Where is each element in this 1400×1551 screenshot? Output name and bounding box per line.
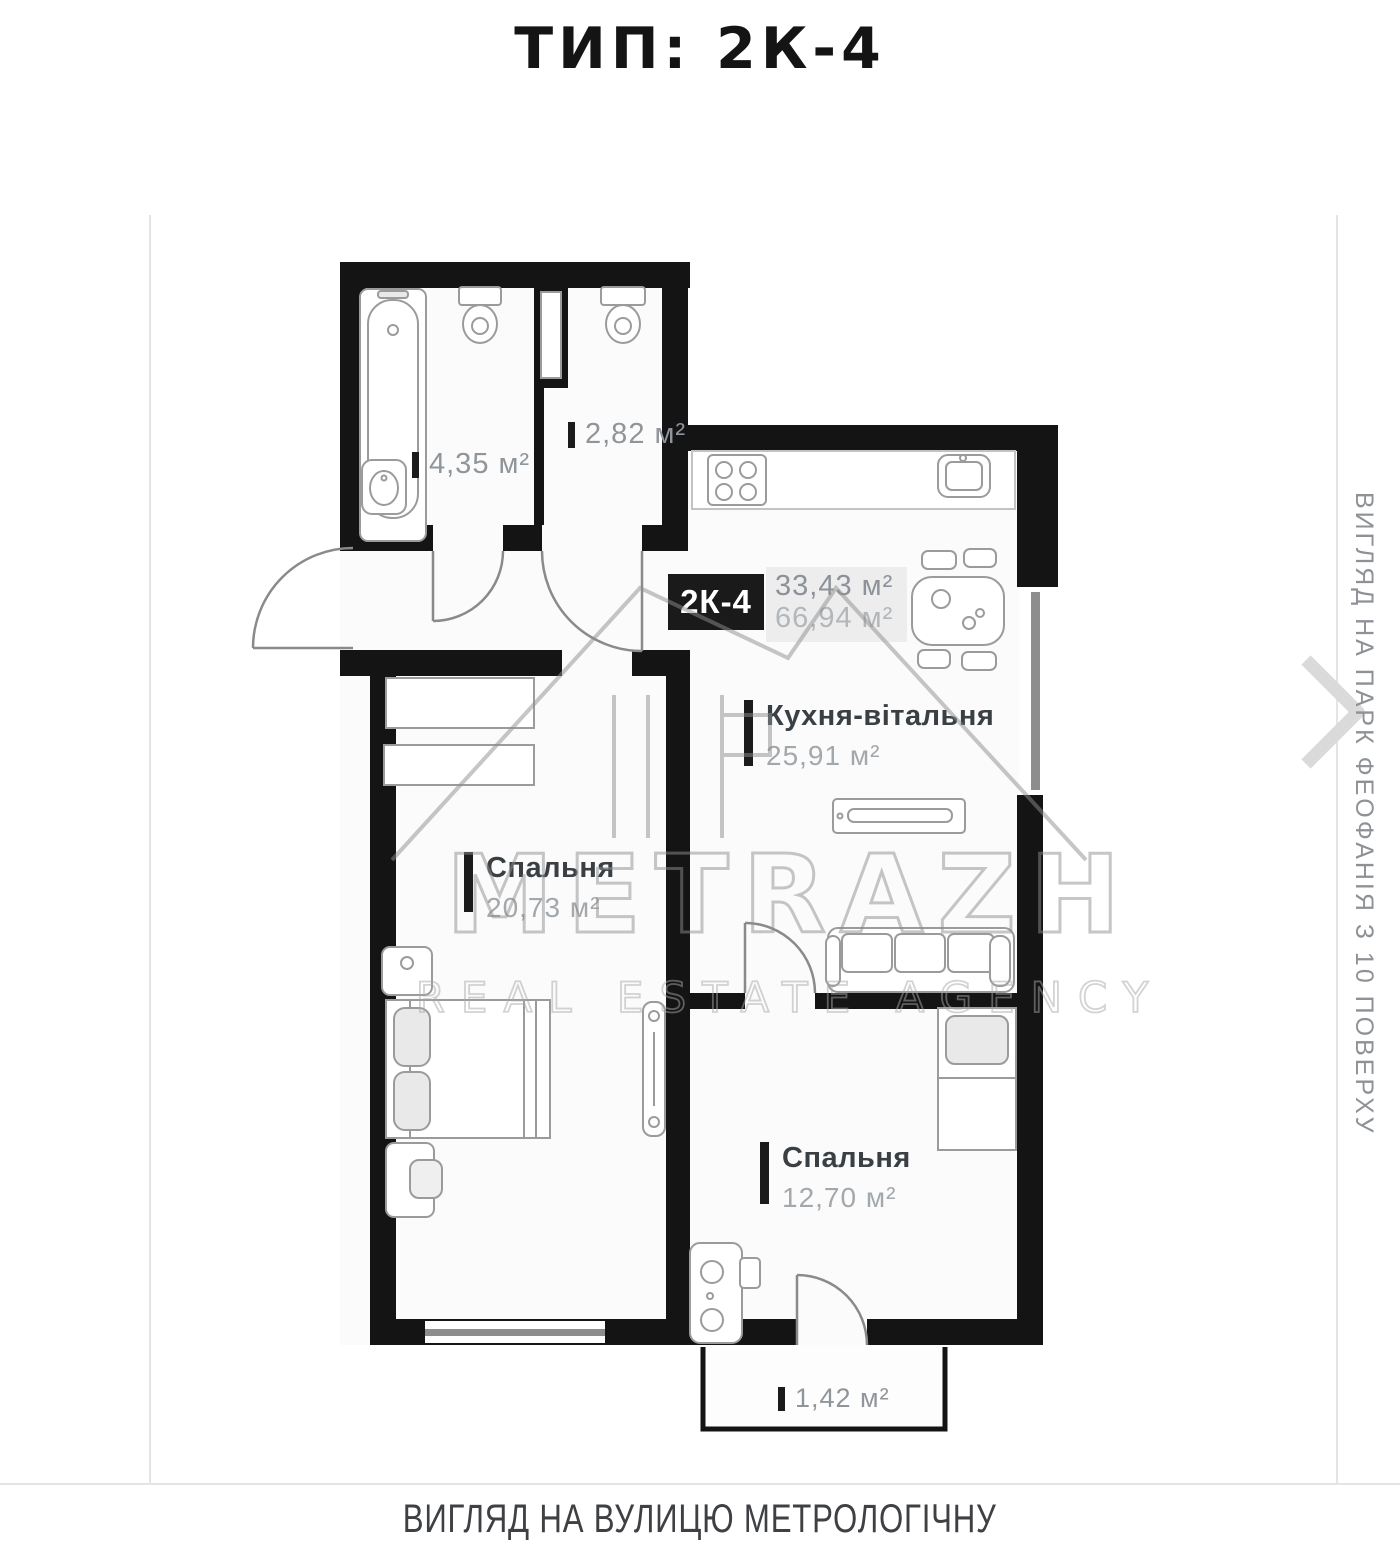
room-area: 20,73 м² — [486, 892, 615, 924]
room-area: 12,70 м² — [782, 1182, 911, 1214]
label-wc: 2,82 м² — [568, 418, 686, 451]
toilet-bathroom — [459, 287, 501, 343]
unit-total-area: 66,94 м² — [775, 602, 893, 634]
unit-areas: 33,43 м² 66,94 м² — [766, 567, 907, 642]
bottom-caption-text: ВИГЛЯД НА ВУЛИЦЮ МЕТРОЛОГІЧНУ — [403, 1497, 997, 1542]
room-area: 4,35 м² — [429, 448, 530, 481]
side-caption: ВИГЛЯД НА ПАРК ФЕОФАНІЯ З 10 ПОВЕРХУ — [1349, 492, 1378, 1136]
label-tick — [744, 700, 753, 766]
room-name: Кухня-вітальня — [766, 700, 994, 733]
room-area: 1,42 м² — [795, 1383, 890, 1414]
vent-shaft — [541, 292, 561, 378]
entrance-door — [253, 548, 353, 648]
double-bed — [386, 1000, 550, 1138]
nightstand — [382, 947, 432, 995]
room-name: Спальня — [782, 1142, 911, 1175]
label-tick — [568, 422, 575, 448]
room-name: Спальня — [486, 852, 615, 885]
stove — [708, 455, 766, 505]
room-area: 2,82 м² — [585, 418, 686, 451]
bottom-caption: ВИГЛЯД НА ВУЛИЦЮ МЕТРОЛОГІЧНУ — [0, 1497, 1400, 1542]
label-balcony: 1,42 м² — [778, 1383, 890, 1414]
label-tick — [464, 852, 473, 912]
label-bedroom-left: Спальня 20,73 м² — [464, 852, 615, 924]
floorplan-page: ТИП: 2К-4 — [0, 0, 1400, 1551]
sink-bathroom — [362, 460, 406, 514]
window-bedroom-left — [425, 1321, 605, 1343]
floorplan-drawing — [0, 0, 1400, 1551]
room-area: 25,91 м² — [766, 740, 994, 772]
unit-living-area: 33,43 м² — [775, 570, 893, 602]
single-bed — [938, 1008, 1016, 1150]
sliding-door-panel — [643, 1002, 665, 1136]
kitchen-sink — [938, 455, 990, 497]
label-kitchen-living: Кухня-вітальня 25,91 м² — [744, 700, 994, 772]
window-right-living — [1019, 587, 1058, 795]
label-bedroom-right: Спальня 12,70 м² — [760, 1142, 911, 1214]
label-tick — [778, 1387, 785, 1411]
label-bathroom: 4,35 м² — [412, 448, 530, 481]
desk-chair-left — [386, 1143, 442, 1217]
label-tick — [412, 452, 419, 478]
unit-code-badge: 2К-4 — [668, 574, 764, 630]
label-tick — [760, 1142, 769, 1204]
tv-stand — [833, 799, 965, 833]
sofa — [826, 928, 1014, 992]
